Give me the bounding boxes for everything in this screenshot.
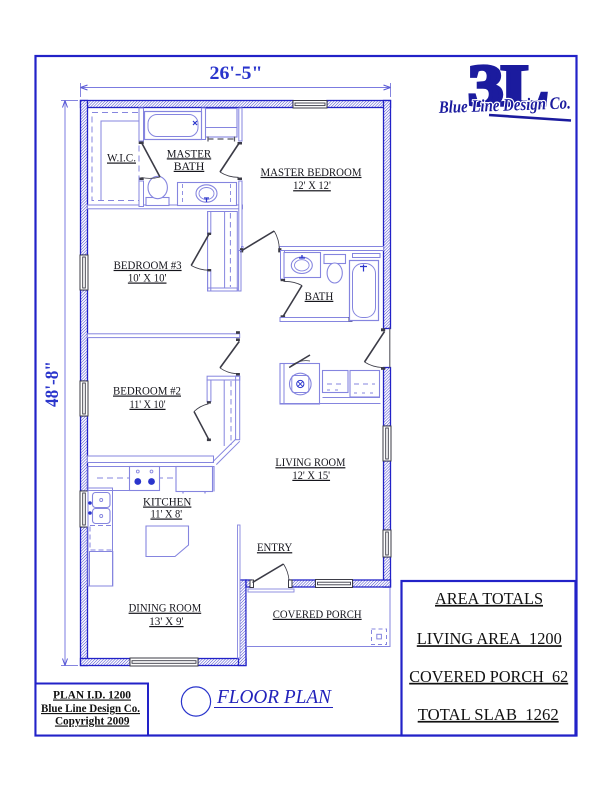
svg-text:LIVING AREA 1200: LIVING AREA 1200 (417, 629, 562, 648)
svg-text:26'-5": 26'-5" (210, 63, 263, 84)
svg-text:BEDROOM #2: BEDROOM #2 (113, 384, 181, 398)
svg-text:FLOOR PLAN: FLOOR PLAN (216, 686, 333, 708)
svg-text:W.I.C.: W.I.C. (107, 151, 136, 165)
svg-text:AREA TOTALS: AREA TOTALS (435, 589, 543, 608)
svg-text:11' X 10': 11' X 10' (129, 397, 165, 411)
svg-text:BATH: BATH (174, 159, 205, 173)
svg-text:12' X 15': 12' X 15' (292, 468, 330, 482)
svg-text:Blue Line Design Co.: Blue Line Design Co. (41, 703, 140, 715)
svg-text:DINING ROOM: DINING ROOM (129, 601, 202, 615)
svg-text:COVERED PORCH: COVERED PORCH (273, 607, 362, 621)
svg-text:Blue Line Design Co.: Blue Line Design Co. (438, 92, 571, 117)
svg-text:BATH: BATH (305, 289, 334, 303)
svg-text:48'-8": 48'-8" (42, 361, 63, 407)
svg-text:Copyright 2009: Copyright 2009 (55, 716, 130, 728)
svg-text:TOTAL SLAB 1262: TOTAL SLAB 1262 (418, 705, 559, 724)
svg-text:MASTER BEDROOM: MASTER BEDROOM (261, 165, 362, 179)
svg-text:10' X 10': 10' X 10' (128, 271, 167, 285)
svg-text:COVERED PORCH 62: COVERED PORCH 62 (409, 667, 568, 686)
svg-text:12' X 12': 12' X 12' (293, 178, 331, 192)
svg-text:13' X 9': 13' X 9' (149, 614, 183, 628)
svg-text:11' X 8': 11' X 8' (150, 507, 182, 521)
svg-text:ENTRY: ENTRY (257, 540, 293, 554)
svg-text:PLAN I.D. 1200: PLAN I.D. 1200 (53, 690, 131, 702)
